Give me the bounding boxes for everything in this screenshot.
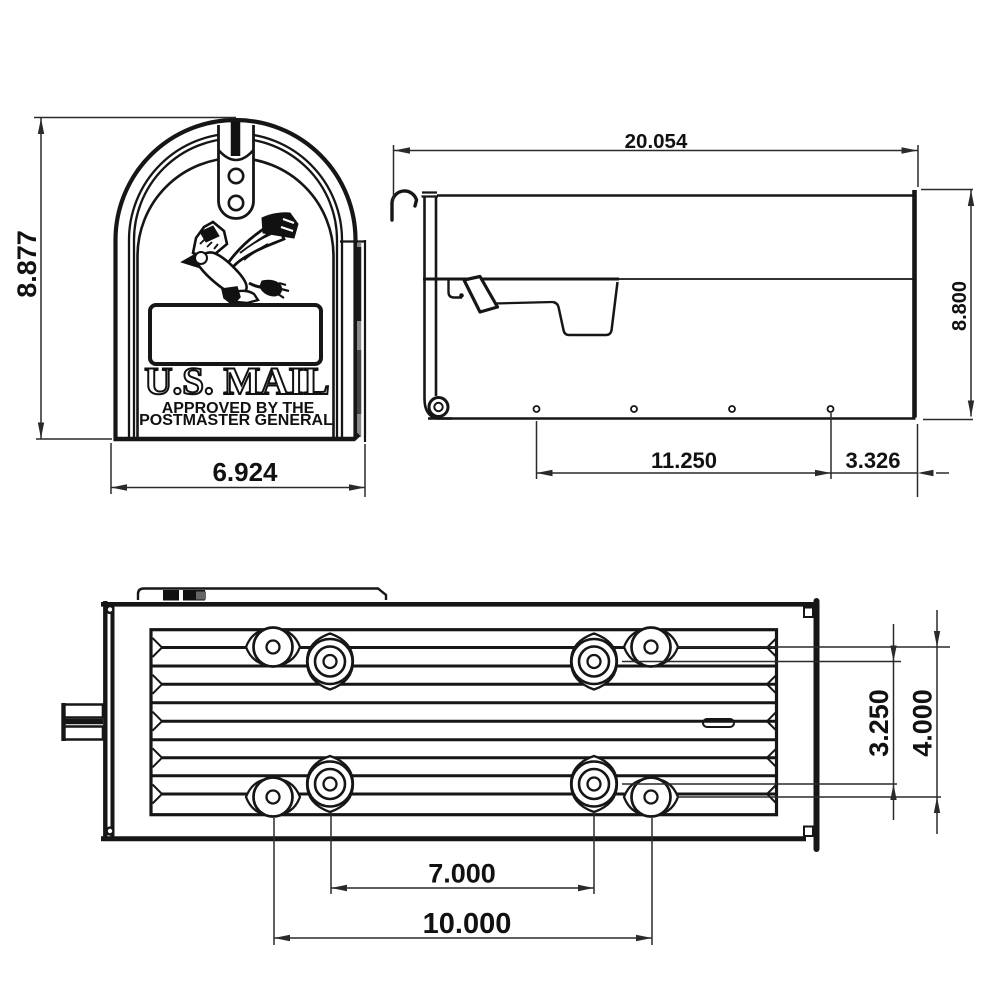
svg-text:3.326: 3.326 [845,448,900,473]
svg-text:U.S. MAIL: U.S. MAIL [144,360,329,403]
svg-text:3.250: 3.250 [864,689,894,757]
svg-text:4.000: 4.000 [908,689,938,757]
svg-text:11.250: 11.250 [651,448,717,473]
svg-text:POSTMASTER GENERAL: POSTMASTER GENERAL [139,412,333,429]
svg-text:6.924: 6.924 [212,457,278,487]
svg-text:10.000: 10.000 [423,908,512,940]
svg-text:7.000: 7.000 [428,859,496,889]
svg-text:8.877: 8.877 [12,230,42,298]
svg-text:20.054: 20.054 [625,130,688,153]
svg-text:8.800: 8.800 [949,281,971,331]
